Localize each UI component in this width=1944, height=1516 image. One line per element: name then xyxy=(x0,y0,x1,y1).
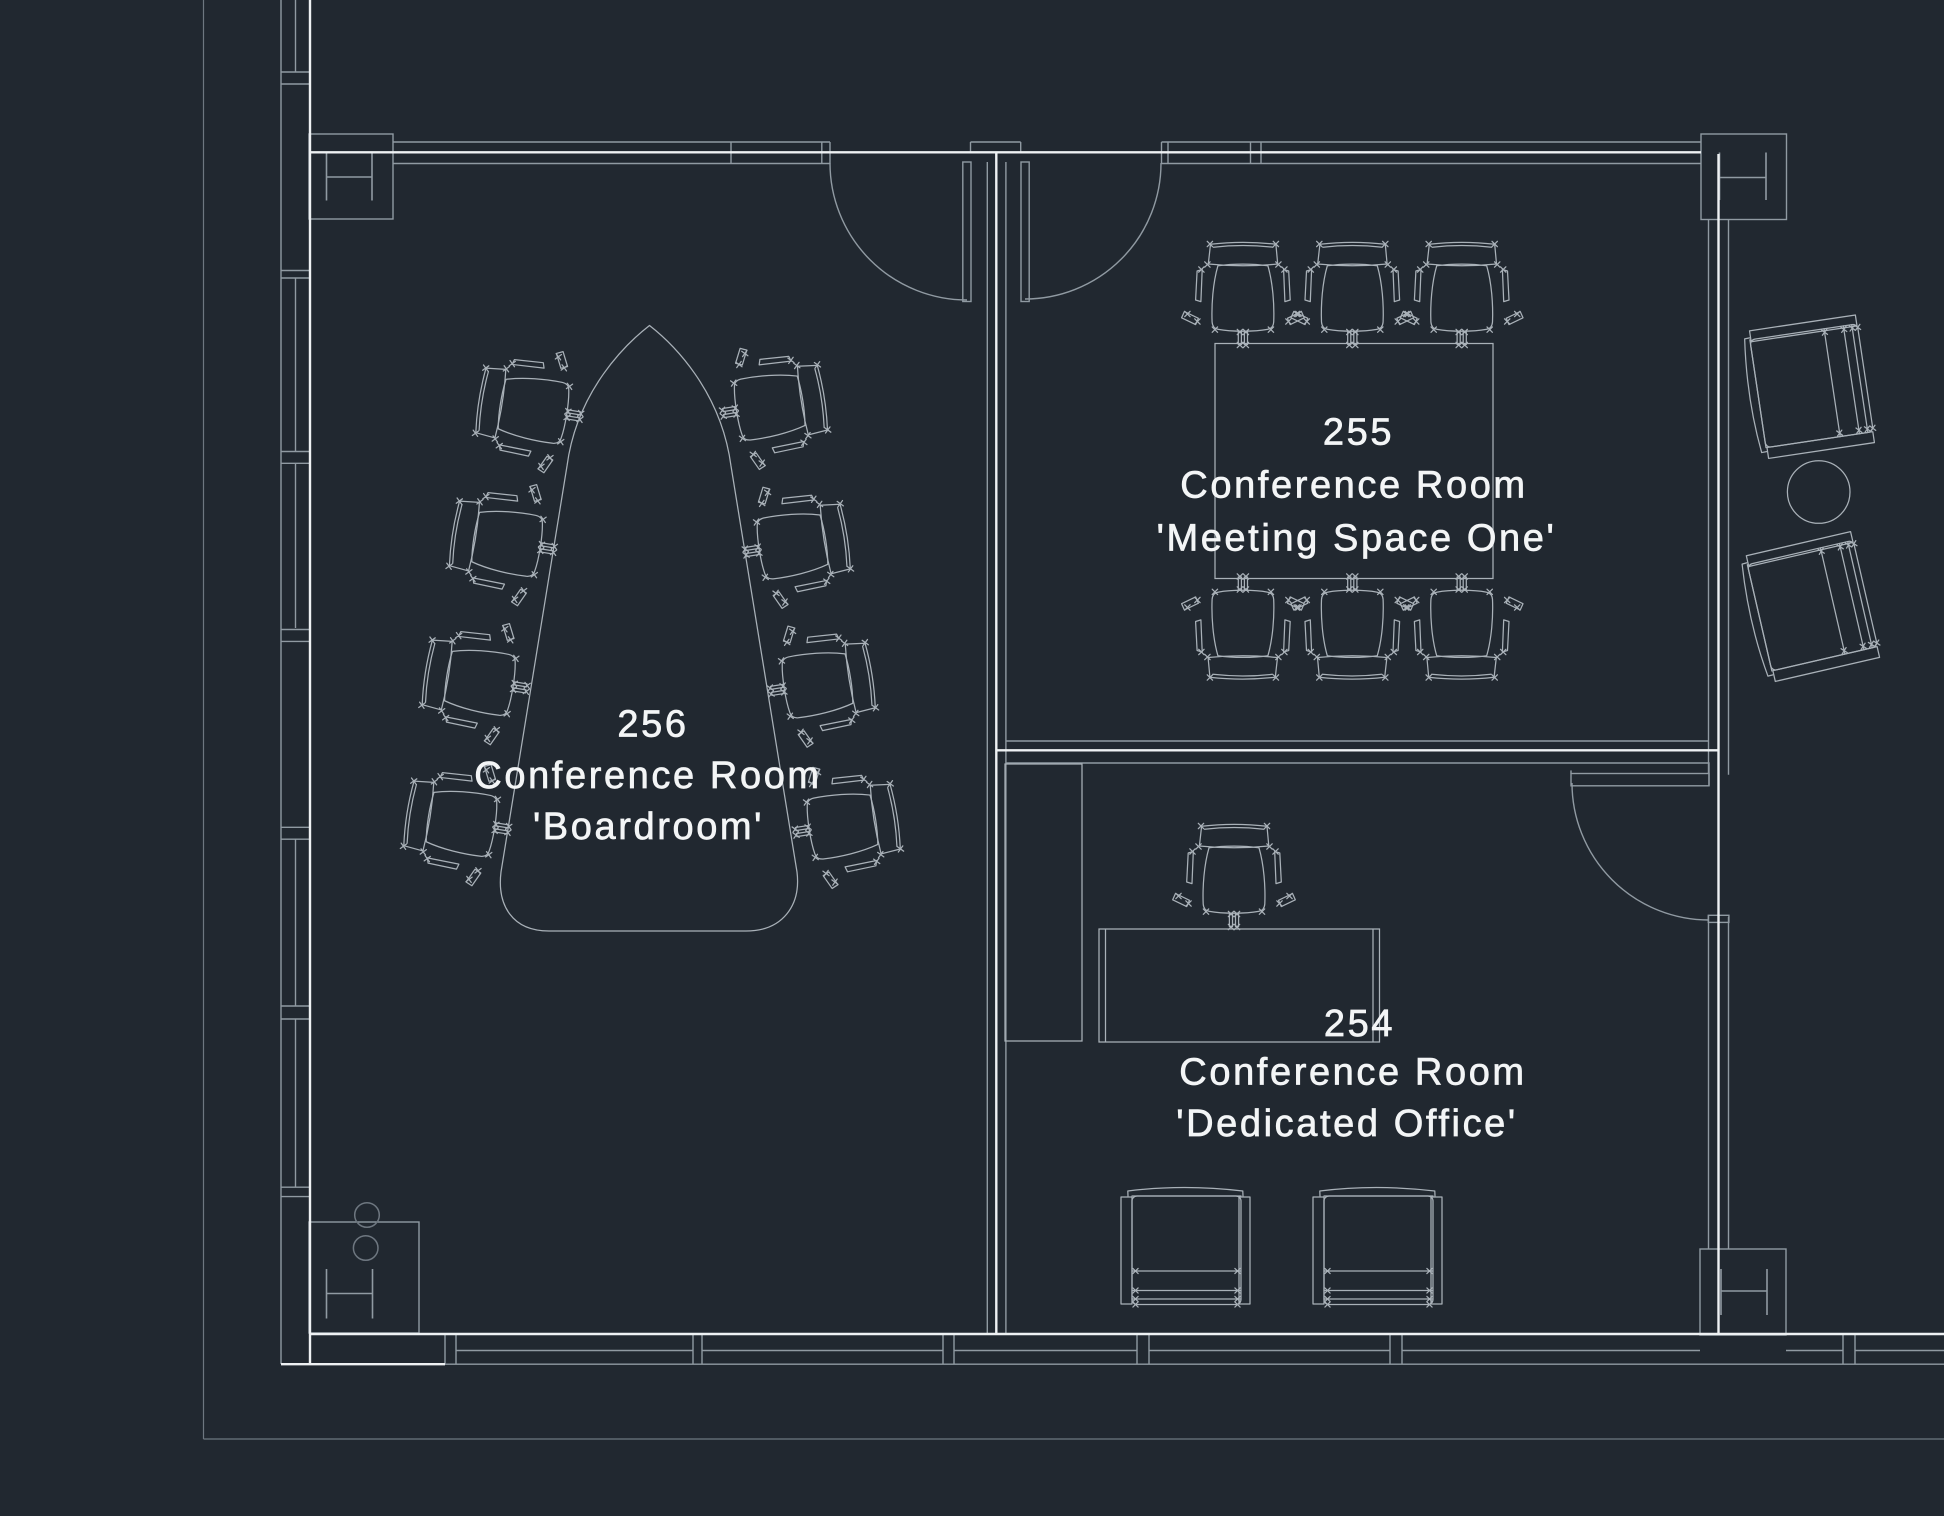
svg-text:255: 255 xyxy=(1323,412,1394,454)
svg-text:256: 256 xyxy=(617,704,688,746)
svg-text:Conference Room: Conference Room xyxy=(1179,1052,1526,1094)
svg-text:'Dedicated Office': 'Dedicated Office' xyxy=(1176,1103,1518,1145)
svg-text:Conference Room: Conference Room xyxy=(1180,465,1527,507)
svg-text:Conference Room: Conference Room xyxy=(474,755,821,797)
svg-text:254: 254 xyxy=(1324,1003,1395,1045)
svg-text:'Boardroom': 'Boardroom' xyxy=(533,806,764,848)
svg-text:'Meeting Space One': 'Meeting Space One' xyxy=(1157,518,1557,560)
